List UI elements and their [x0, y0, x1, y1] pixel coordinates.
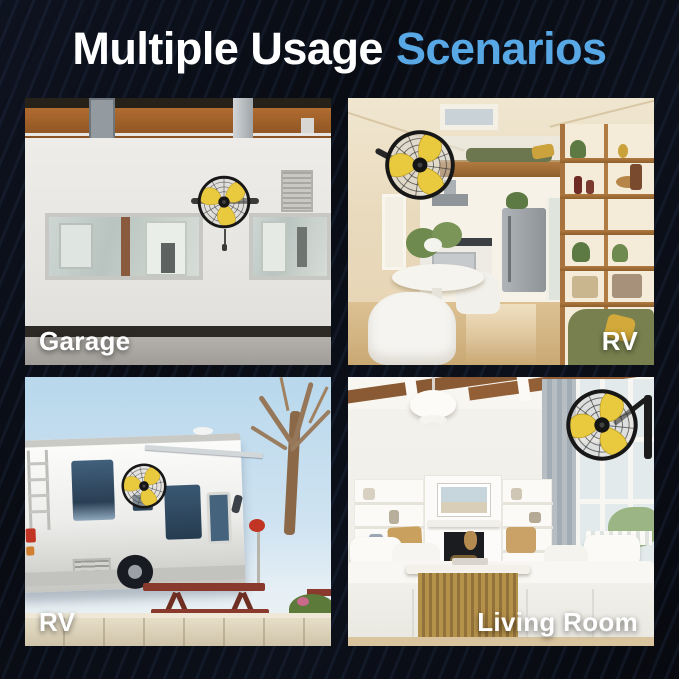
shelf-line: [503, 502, 553, 505]
garage-window-right: [249, 213, 331, 280]
rv-marker-light: [26, 546, 34, 555]
table-tray: [452, 558, 488, 565]
rv-tail-light: [25, 528, 35, 542]
scenario-photo-rv-interior: RV: [348, 98, 654, 365]
fan-pull-chain: [224, 229, 226, 244]
fan-mount-pole: [644, 395, 652, 459]
scenario-photo-rv-exterior: RV: [25, 377, 331, 646]
window-equipment-shape: [161, 243, 175, 273]
scenario-photo-living-room: Living Room: [348, 377, 654, 646]
molded-chair: [368, 292, 456, 365]
storage-basket: [572, 276, 598, 298]
rattan-box: [506, 527, 536, 553]
plant-on-fridge: [506, 192, 528, 209]
wine-bottle: [574, 176, 582, 194]
shelf-board: [560, 194, 654, 199]
shelf-decor: [529, 512, 541, 523]
garage-conduit-pipe: [25, 133, 331, 136]
rv-window: [71, 460, 115, 521]
shelf-decor: [511, 488, 522, 500]
rv-wheel-hub: [128, 565, 142, 579]
shelf-plant: [570, 140, 586, 158]
wall-fan-icon: [196, 174, 252, 230]
product-infographic: Multiple Usage Scenarios Garage: [0, 0, 679, 679]
pink-flowers: [297, 597, 309, 606]
title-accent-text: Scenarios: [396, 23, 607, 75]
shelf-board: [560, 230, 654, 235]
wall-fan-icon: [116, 458, 173, 515]
pendant-lamp-tier: [425, 422, 441, 429]
title-white-text: Multiple Usage: [72, 23, 383, 75]
fan-pull-chain-knob: [222, 244, 227, 251]
scenario-label: RV: [602, 326, 638, 357]
table-flowers: [424, 238, 442, 252]
garage-electrical-panel: [89, 98, 115, 140]
window-reflection-panel: [59, 223, 93, 269]
scenario-photo-garage: Garage: [25, 98, 331, 365]
skylight: [440, 104, 498, 130]
window-wood-post: [121, 217, 130, 276]
refrigerator: [502, 208, 546, 292]
red-flower: [249, 519, 265, 532]
picnic-table-top: [143, 583, 265, 591]
scenario-label: Living Room: [477, 607, 638, 638]
window-equipment-shape: [297, 227, 307, 267]
vase: [464, 531, 477, 550]
shelf-decor: [363, 488, 375, 500]
fridge-handle: [508, 216, 511, 282]
wood-floor-strip: [348, 637, 654, 646]
sofa-seam: [412, 589, 414, 639]
wine-bottle: [586, 180, 594, 194]
flower-pole: [257, 529, 260, 587]
shelf-board: [560, 158, 654, 163]
garage-vent-grille: [281, 170, 313, 212]
window-reflection-panel: [261, 221, 287, 273]
garage-junction-box: [301, 118, 314, 133]
pendant-lamp-dome: [410, 390, 456, 418]
shelf-fruit-bowl: [618, 144, 628, 158]
shelf-plant: [572, 242, 590, 262]
rv-door-window: [206, 491, 232, 544]
rv-satellite-dish: [193, 427, 213, 435]
mantel-shelf: [428, 520, 500, 527]
window-mullion: [580, 499, 654, 504]
page-title: Multiple Usage Scenarios: [0, 0, 679, 98]
shelf-plant: [612, 244, 628, 262]
jar: [630, 164, 642, 190]
shelf-line: [355, 502, 425, 505]
shelf-board: [560, 302, 654, 307]
garage-window-left: [45, 213, 203, 280]
scenario-label: Garage: [39, 326, 130, 357]
framed-beach-art: [438, 484, 490, 516]
round-table-top: [392, 264, 484, 291]
rv-vehicle: [25, 433, 246, 593]
scenario-label: RV: [39, 607, 75, 638]
shelf-decor: [389, 510, 399, 524]
shelf-board: [560, 266, 654, 271]
books-stack: [612, 274, 642, 298]
